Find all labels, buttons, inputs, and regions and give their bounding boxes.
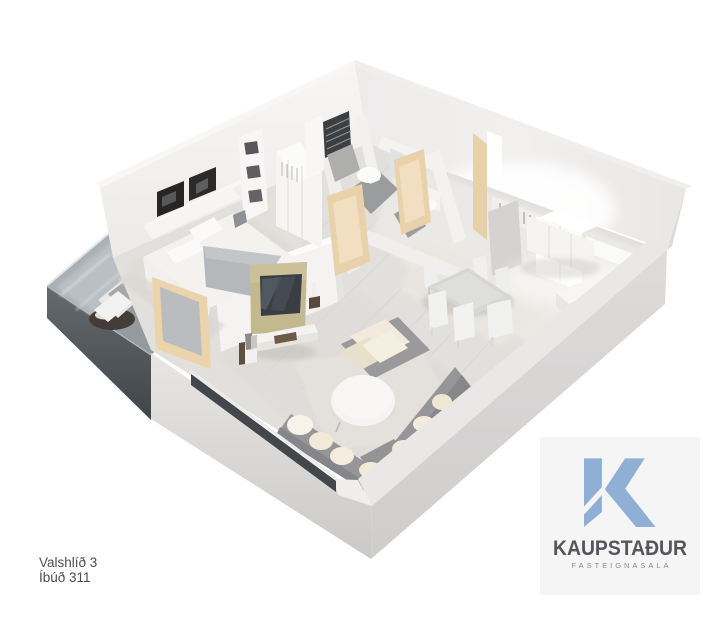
svg-text:Valshlíð 3: Valshlíð 3 [39,555,97,570]
svg-text:Íbúð 311: Íbúð 311 [39,570,91,585]
svg-text:KAUPSTAÐUR: KAUPSTAÐUR [553,537,687,560]
